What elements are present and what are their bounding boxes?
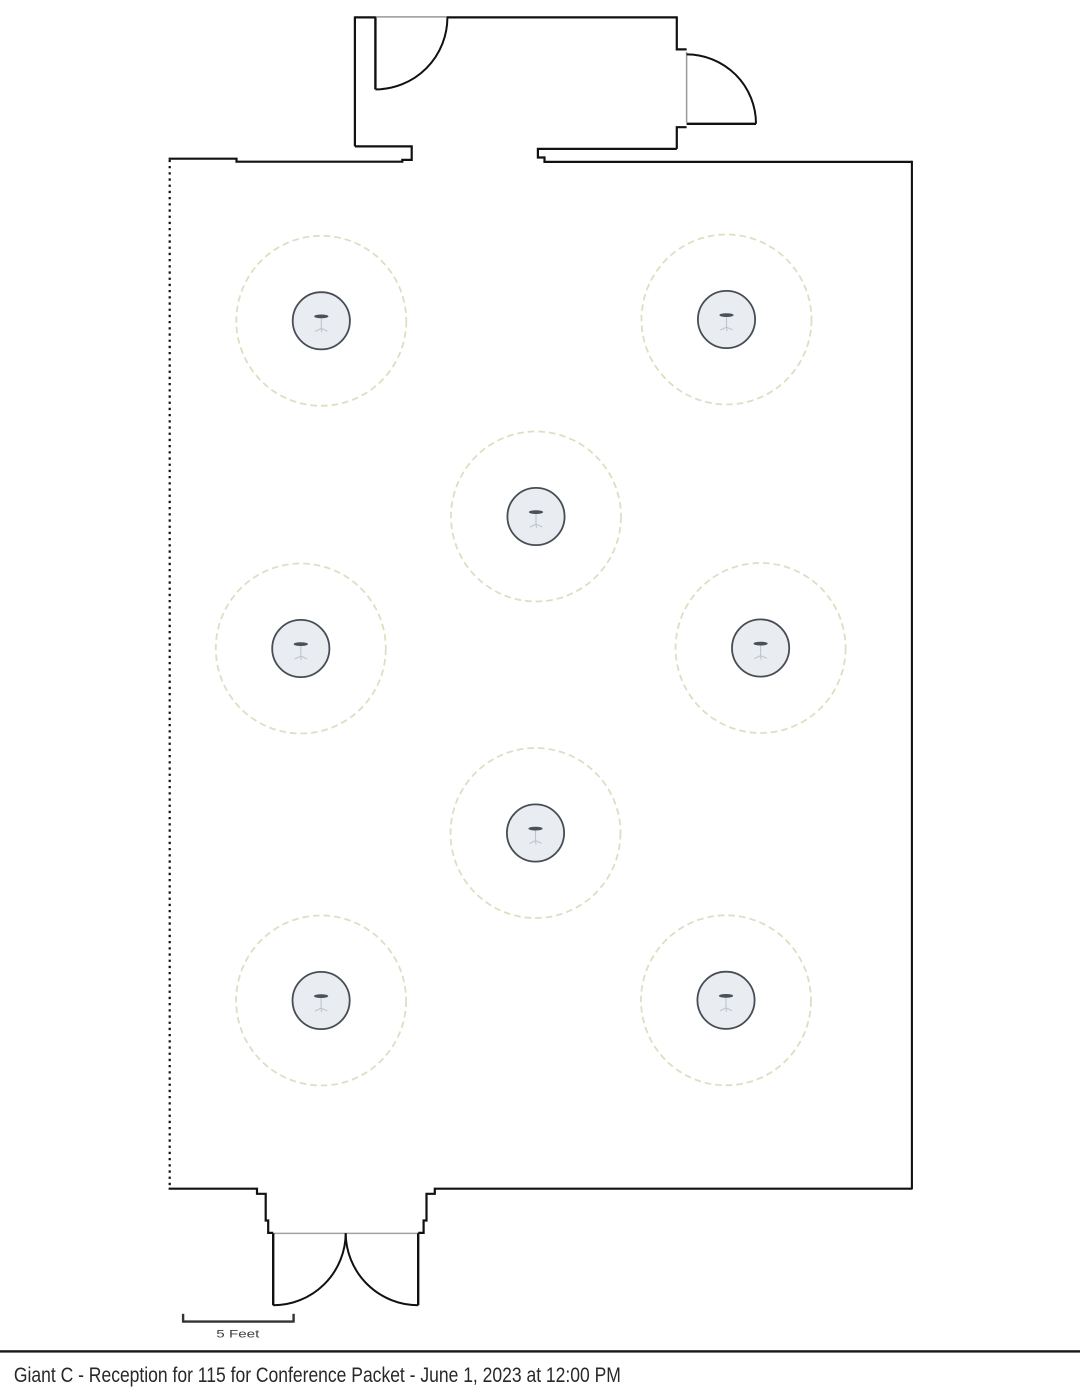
svg-text:Giant C - Reception for 115 f: Giant C - Reception for 115 for Conferen… <box>14 1364 621 1387</box>
svg-text:5 Feet: 5 Feet <box>216 1329 260 1341</box>
